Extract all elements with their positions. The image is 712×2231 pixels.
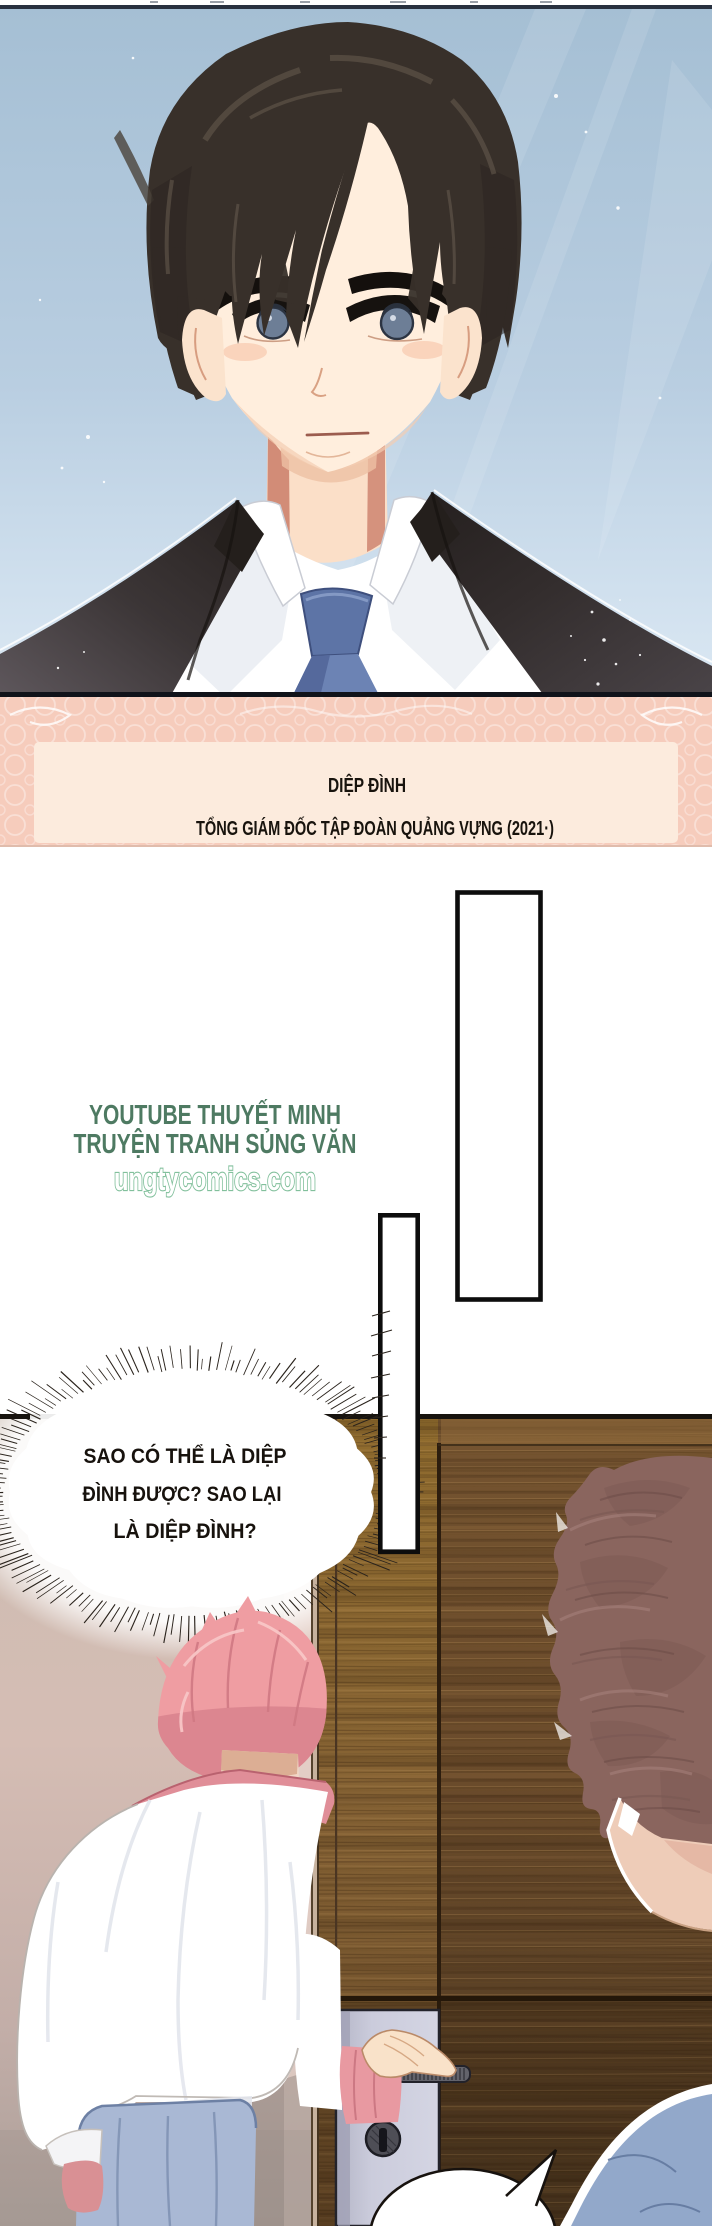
svg-text:LÀ DIỆP ĐÌNH?: LÀ DIỆP ĐÌNH? bbox=[114, 1519, 257, 1543]
svg-text:DIỆP ĐÌNH: DIỆP ĐÌNH bbox=[328, 773, 406, 797]
svg-text:TỔNG GIÁM ĐỐC TẬP ĐOÀN QUẢNG V: TỔNG GIÁM ĐỐC TẬP ĐOÀN QUẢNG VỰNG (2021·… bbox=[196, 816, 554, 840]
svg-text:ungtycomics.com: ungtycomics.com bbox=[114, 1161, 316, 1197]
svg-text:SAO CÓ THỂ LÀ DIỆP: SAO CÓ THỂ LÀ DIỆP bbox=[84, 1444, 287, 1468]
svg-text:YOUTUBE THUYẾT MINH: YOUTUBE THUYẾT MINH bbox=[89, 1099, 341, 1130]
svg-text:TRUYỆN TRANH SỦNG VĂN: TRUYỆN TRANH SỦNG VĂN bbox=[74, 1127, 357, 1159]
svg-text:ĐÌNH ĐƯỢC? SAO LẠI: ĐÌNH ĐƯỢC? SAO LẠI bbox=[83, 1483, 282, 1506]
